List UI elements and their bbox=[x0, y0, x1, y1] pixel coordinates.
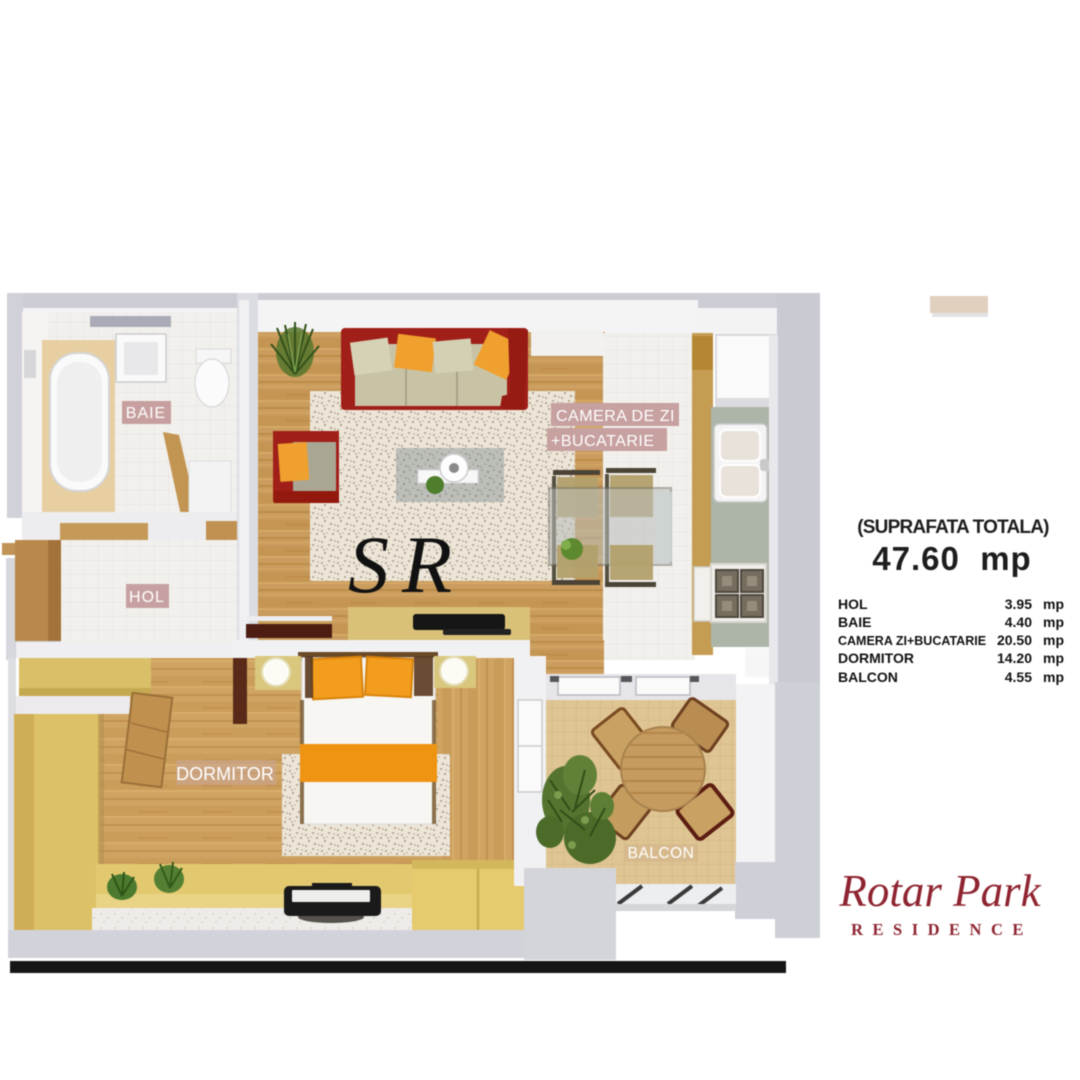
svg-text:47.60 mp: 47.60 mp bbox=[872, 540, 1031, 577]
svg-text:DORMITOR: DORMITOR bbox=[838, 650, 914, 666]
svg-text:4.55: 4.55 bbox=[1005, 669, 1032, 685]
svg-text:BAIE: BAIE bbox=[126, 405, 166, 422]
svg-text:mp: mp bbox=[1043, 614, 1064, 630]
svg-text:RESIDENCE: RESIDENCE bbox=[851, 920, 1033, 939]
svg-text:20.50: 20.50 bbox=[997, 632, 1032, 648]
svg-text:BALCON: BALCON bbox=[628, 845, 695, 862]
svg-text:BAIE: BAIE bbox=[838, 614, 871, 630]
svg-text:mp: mp bbox=[1043, 650, 1064, 666]
svg-text:4.40: 4.40 bbox=[1005, 614, 1032, 630]
svg-text:Rotar Park: Rotar Park bbox=[838, 866, 1041, 916]
svg-text:mp: mp bbox=[1043, 596, 1064, 612]
svg-text:HOL: HOL bbox=[129, 589, 165, 606]
svg-text:mp: mp bbox=[1043, 669, 1064, 685]
svg-text:SR: SR bbox=[348, 519, 465, 610]
svg-text:BALCON: BALCON bbox=[838, 669, 898, 685]
svg-text:+BUCATARIE: +BUCATARIE bbox=[551, 433, 655, 450]
svg-text:14.20: 14.20 bbox=[997, 650, 1032, 666]
svg-text:CAMERA DE ZI: CAMERA DE ZI bbox=[556, 408, 675, 425]
svg-text:HOL: HOL bbox=[838, 596, 868, 612]
svg-text:mp: mp bbox=[1043, 632, 1064, 648]
svg-text:(SUPRAFATA TOTALA): (SUPRAFATA TOTALA) bbox=[857, 517, 1049, 538]
svg-text:CAMERA ZI+BUCATARIE: CAMERA ZI+BUCATARIE bbox=[838, 634, 986, 648]
svg-text:3.95: 3.95 bbox=[1005, 596, 1032, 612]
svg-text:DORMITOR: DORMITOR bbox=[176, 764, 274, 784]
